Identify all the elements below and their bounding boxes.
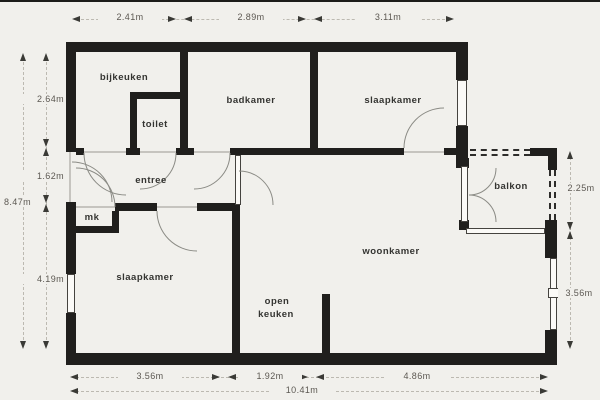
arrow-right-icon: [446, 16, 454, 22]
room-label-mk: mk: [72, 212, 112, 223]
arrow-right-icon: [298, 16, 306, 22]
arrow-up-icon: [567, 151, 573, 159]
room-label-balkon: balkon: [471, 181, 551, 192]
wall-hall-top-seg1: [76, 148, 84, 155]
arrow-right-icon: [168, 16, 176, 22]
dimension-label-top-1: 2.41m: [98, 12, 162, 22]
arrow-up-icon: [20, 53, 26, 61]
door-arc-hall-livingroom: [239, 171, 273, 205]
room-label-bijkeuken: bijkeuken: [74, 72, 174, 83]
door-arc-bedroom-top: [404, 108, 444, 148]
arrow-right-icon: [212, 374, 220, 380]
window-balcony-bottom: [466, 228, 545, 234]
door-arc-bedroom-bottom: [157, 211, 197, 251]
dimension-label-top-2: 2.89m: [219, 12, 283, 22]
arrow-left-icon: [184, 16, 192, 22]
door-arc-bathroom: [194, 153, 230, 189]
wall-mk-bottom: [76, 226, 119, 233]
arrow-right-icon: [540, 374, 548, 380]
dimension-label-bottom-3: 4.86m: [385, 371, 449, 381]
arrow-down-icon: [43, 139, 49, 147]
arrow-down-icon: [567, 222, 573, 230]
door-arc-front-door: [72, 162, 112, 202]
wall-balcony-top: [530, 148, 548, 156]
door-arc-mk: [76, 168, 115, 207]
arrow-left-icon: [70, 388, 78, 394]
floor-plan: bijkeuken toilet badkamer slaapkamer ent…: [0, 0, 600, 400]
wall-exterior-bottom: [66, 353, 557, 365]
room-label-toilet: toilet: [115, 119, 195, 130]
dimension-label-right-1: 2.25m: [560, 183, 600, 193]
room-label-badkamer: badkamer: [201, 95, 301, 106]
room-label-entree: entree: [111, 175, 191, 186]
arrow-down-icon: [43, 341, 49, 349]
wall-exterior-left-upper: [66, 42, 76, 152]
room-label-slaapkamer-bottom: slaapkamer: [95, 272, 195, 283]
arrow-up-icon: [567, 231, 573, 239]
arrow-left-icon: [228, 374, 236, 380]
wall-utility-bathroom: [180, 52, 188, 148]
wall-balcony-top-pillar: [548, 148, 557, 170]
door-swing-arcs: [0, 0, 600, 400]
arrow-left-icon: [316, 374, 324, 380]
room-label-woonkamer: woonkamer: [341, 246, 441, 257]
wall-hall-top-seg2: [126, 148, 140, 155]
arrow-up-icon: [43, 53, 49, 61]
dimension-label-bottom-total: 10.41m: [270, 385, 334, 395]
wall-hall-top-seg5: [444, 148, 468, 155]
door-arc-balcony-lower: [469, 195, 496, 222]
arrow-left-icon: [314, 16, 322, 22]
room-label-slaapkamer-top: slaapkamer: [343, 95, 443, 106]
wall-hall-top-seg3: [176, 148, 194, 155]
dimension-label-left-total: 8.47m: [2, 197, 42, 207]
balcony-railing-right: [549, 170, 556, 220]
wall-livingroom-se-pillar: [545, 330, 557, 355]
dimension-label-left-3: 4.19m: [22, 274, 66, 284]
arrow-down-icon: [567, 341, 573, 349]
window-bedroom2-left: [67, 274, 75, 313]
dimension-label-left-1: 2.64m: [22, 94, 66, 104]
arrow-left-icon: [72, 16, 80, 22]
window-bedroom-right: [457, 80, 467, 126]
wall-bedroom-right-upper: [456, 42, 468, 80]
arrow-right-icon: [540, 388, 548, 394]
arrow-down-icon: [43, 195, 49, 203]
wall-livingroom-ne-pillar: [545, 220, 557, 258]
wall-toilet-top: [130, 92, 187, 99]
room-label-open-keuken-line1: open: [237, 296, 317, 307]
balcony-french-door-glass: [461, 166, 468, 222]
dimension-label-top-3: 3.11m: [356, 12, 420, 22]
wall-kitchen-stub: [322, 294, 330, 353]
hall-livingroom-door-glass: [235, 155, 241, 205]
dimension-label-bottom-1: 3.56m: [118, 371, 182, 381]
arrow-up-icon: [43, 204, 49, 212]
wall-bathroom-bedroom: [310, 52, 318, 155]
dimension-label-bottom-2: 1.92m: [238, 371, 302, 381]
dimension-label-right-2: 3.56m: [558, 288, 600, 298]
door-arc-utility: [84, 153, 126, 195]
balcony-railing-top: [470, 149, 530, 156]
arrow-up-icon: [43, 148, 49, 156]
wall-hall-top-seg4: [230, 148, 404, 155]
arrow-down-icon: [20, 341, 26, 349]
room-label-open-keuken-line2: keuken: [236, 309, 316, 320]
arrow-left-icon: [70, 374, 78, 380]
scan-edge-artifact: [0, 0, 600, 2]
wall-exterior-top: [66, 42, 468, 52]
wall-hall-bottom-seg1: [115, 203, 157, 211]
wall-bedroom2-right: [232, 203, 240, 353]
dimension-label-left-2: 1.62m: [22, 171, 66, 181]
